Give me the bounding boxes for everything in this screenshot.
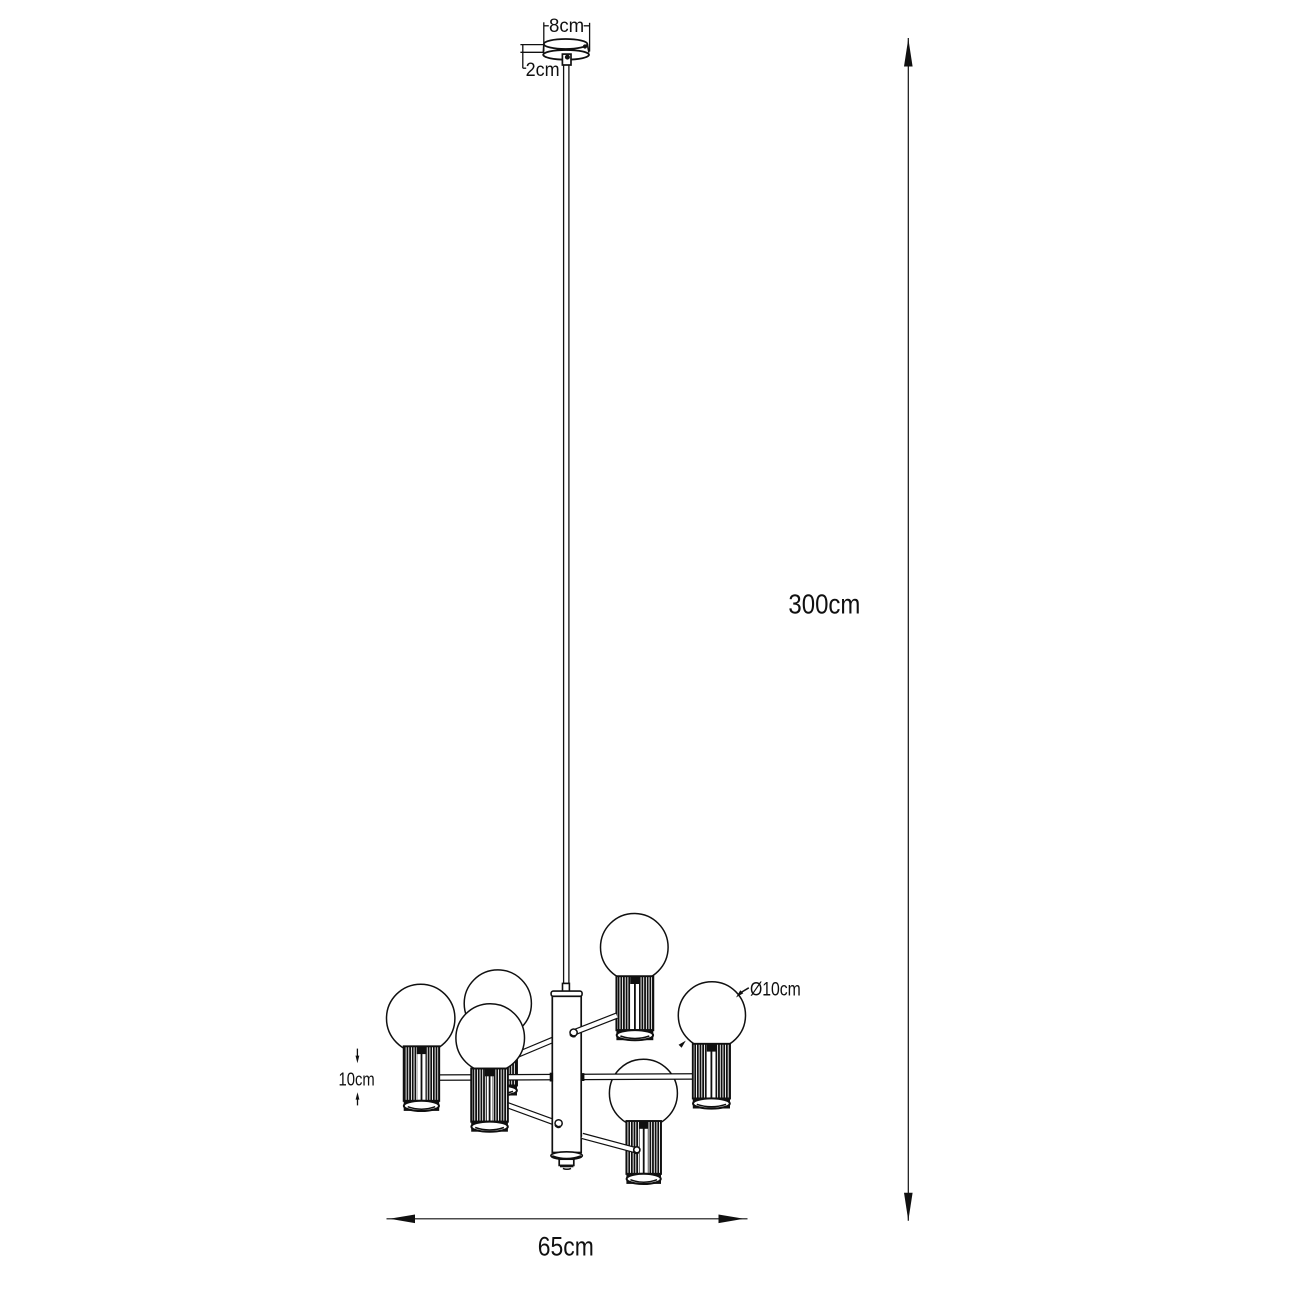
svg-text:300cm: 300cm (788, 589, 860, 620)
svg-text:10cm: 10cm (339, 1069, 375, 1089)
svg-text:Ø10cm: Ø10cm (750, 979, 801, 1000)
svg-text:2cm: 2cm (526, 60, 560, 81)
svg-text:65cm: 65cm (538, 1232, 594, 1262)
svg-text:8cm: 8cm (549, 16, 584, 37)
